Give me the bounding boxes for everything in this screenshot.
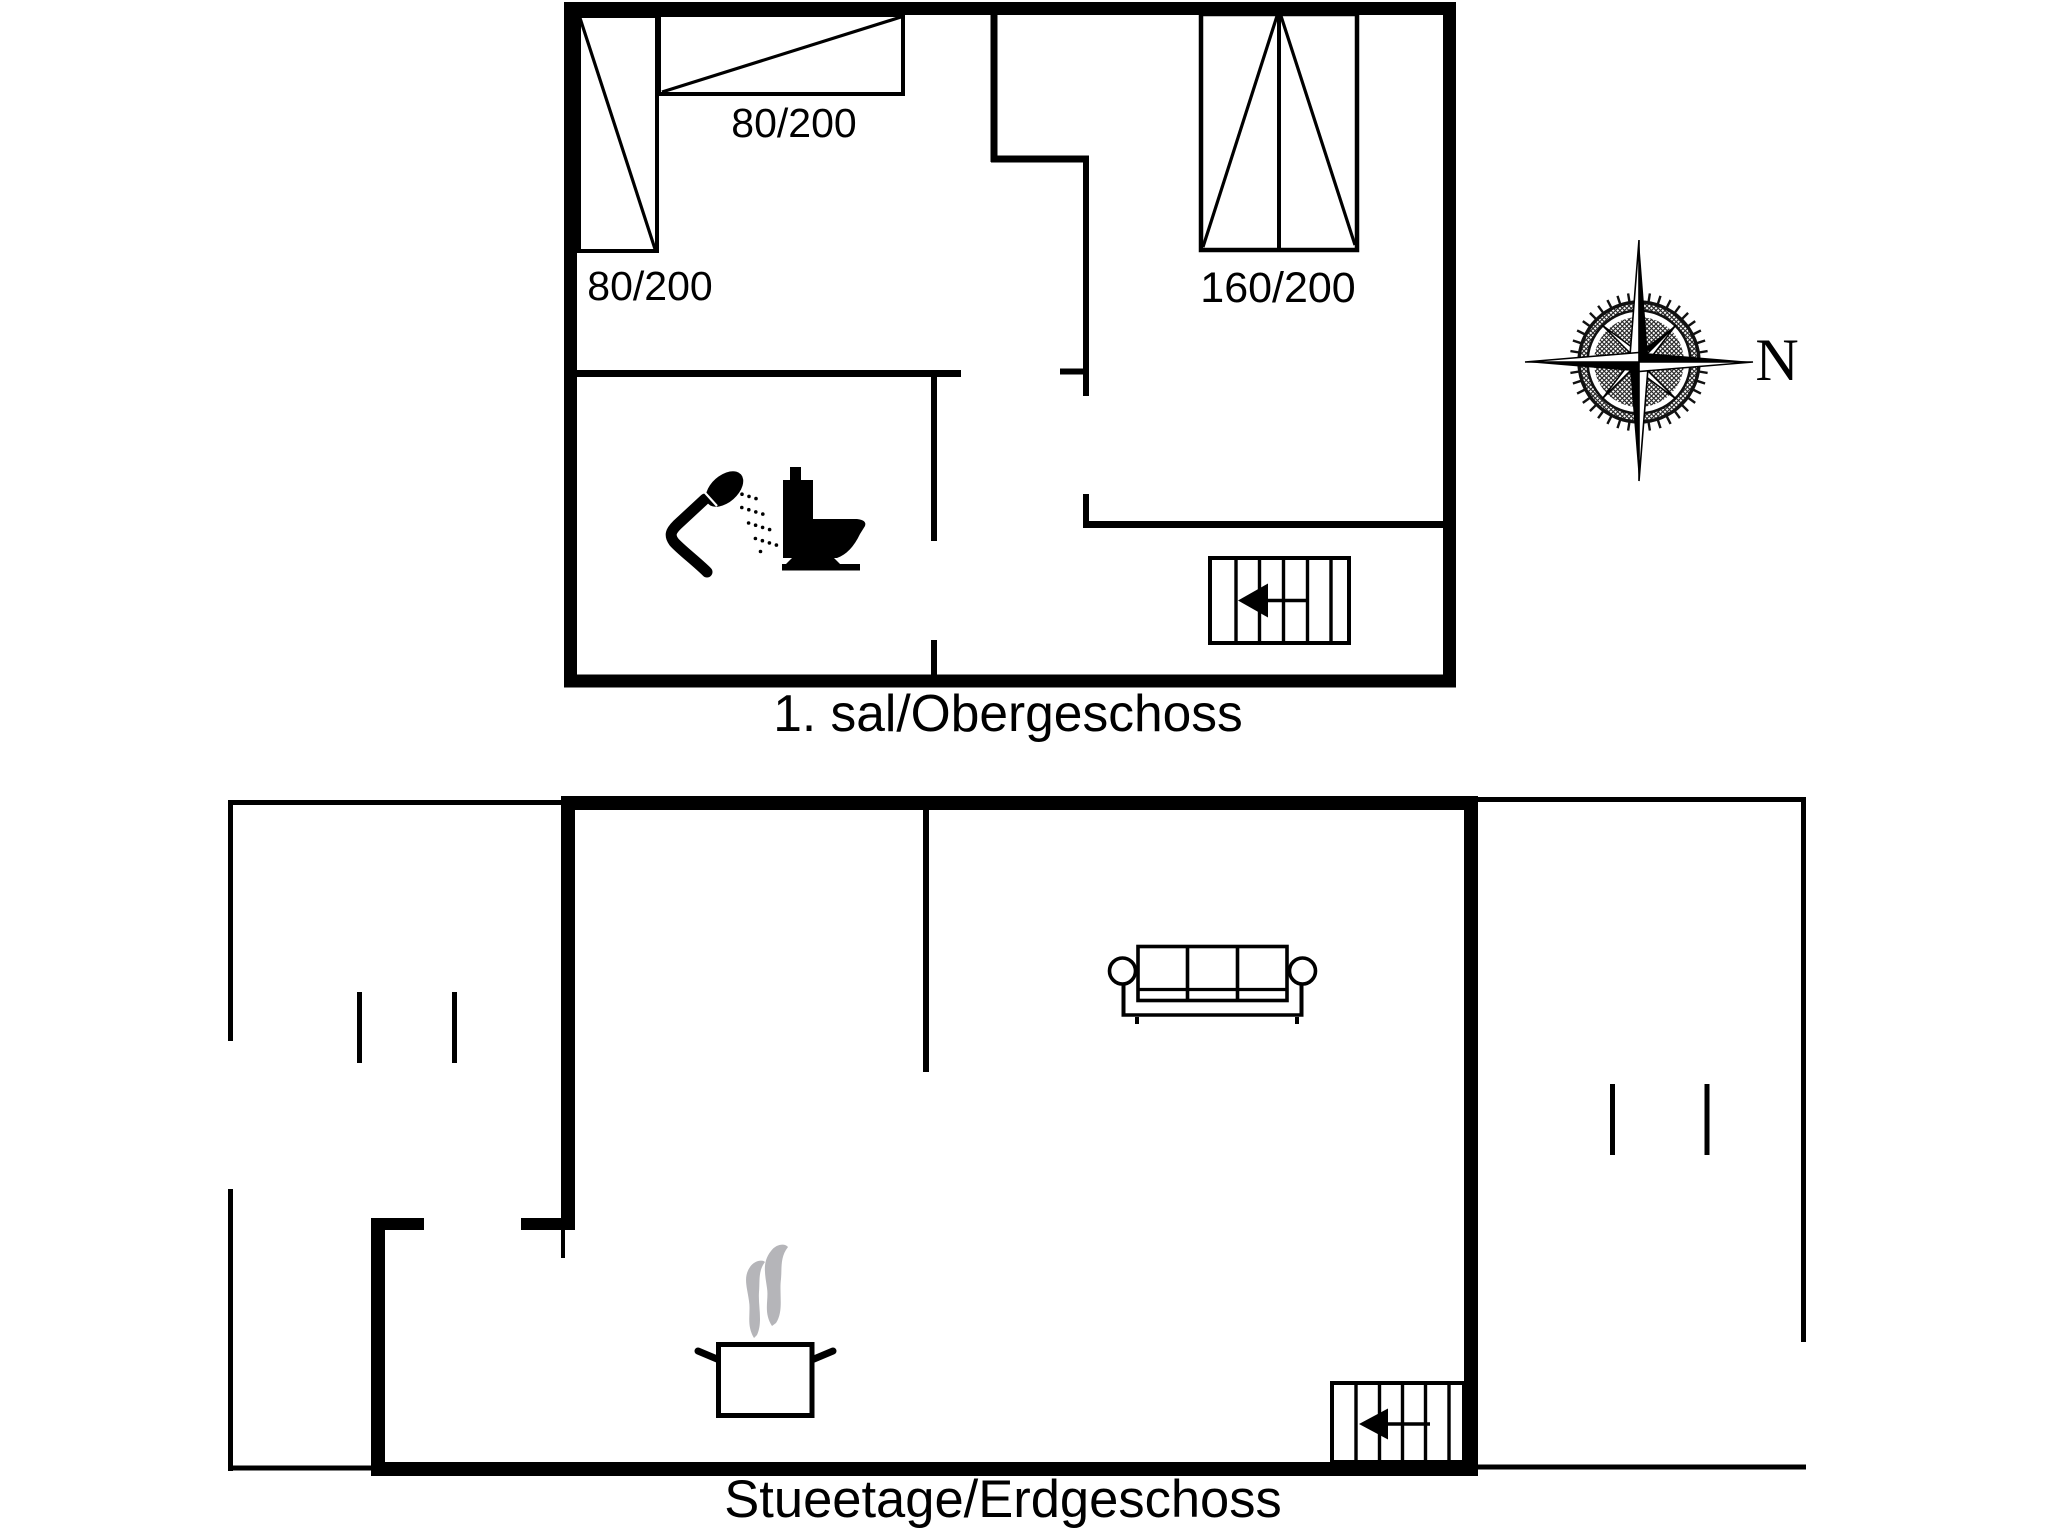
svg-text:80/200: 80/200	[587, 263, 712, 309]
svg-text:Stueetage/Erdgeschoss: Stueetage/Erdgeschoss	[724, 1470, 1281, 1529]
svg-text:80/200: 80/200	[731, 100, 856, 146]
svg-text:160/200: 160/200	[1200, 264, 1355, 312]
svg-text:1. sal/Obergeschoss: 1. sal/Obergeschoss	[773, 684, 1242, 742]
svg-text:N: N	[1755, 327, 1798, 393]
